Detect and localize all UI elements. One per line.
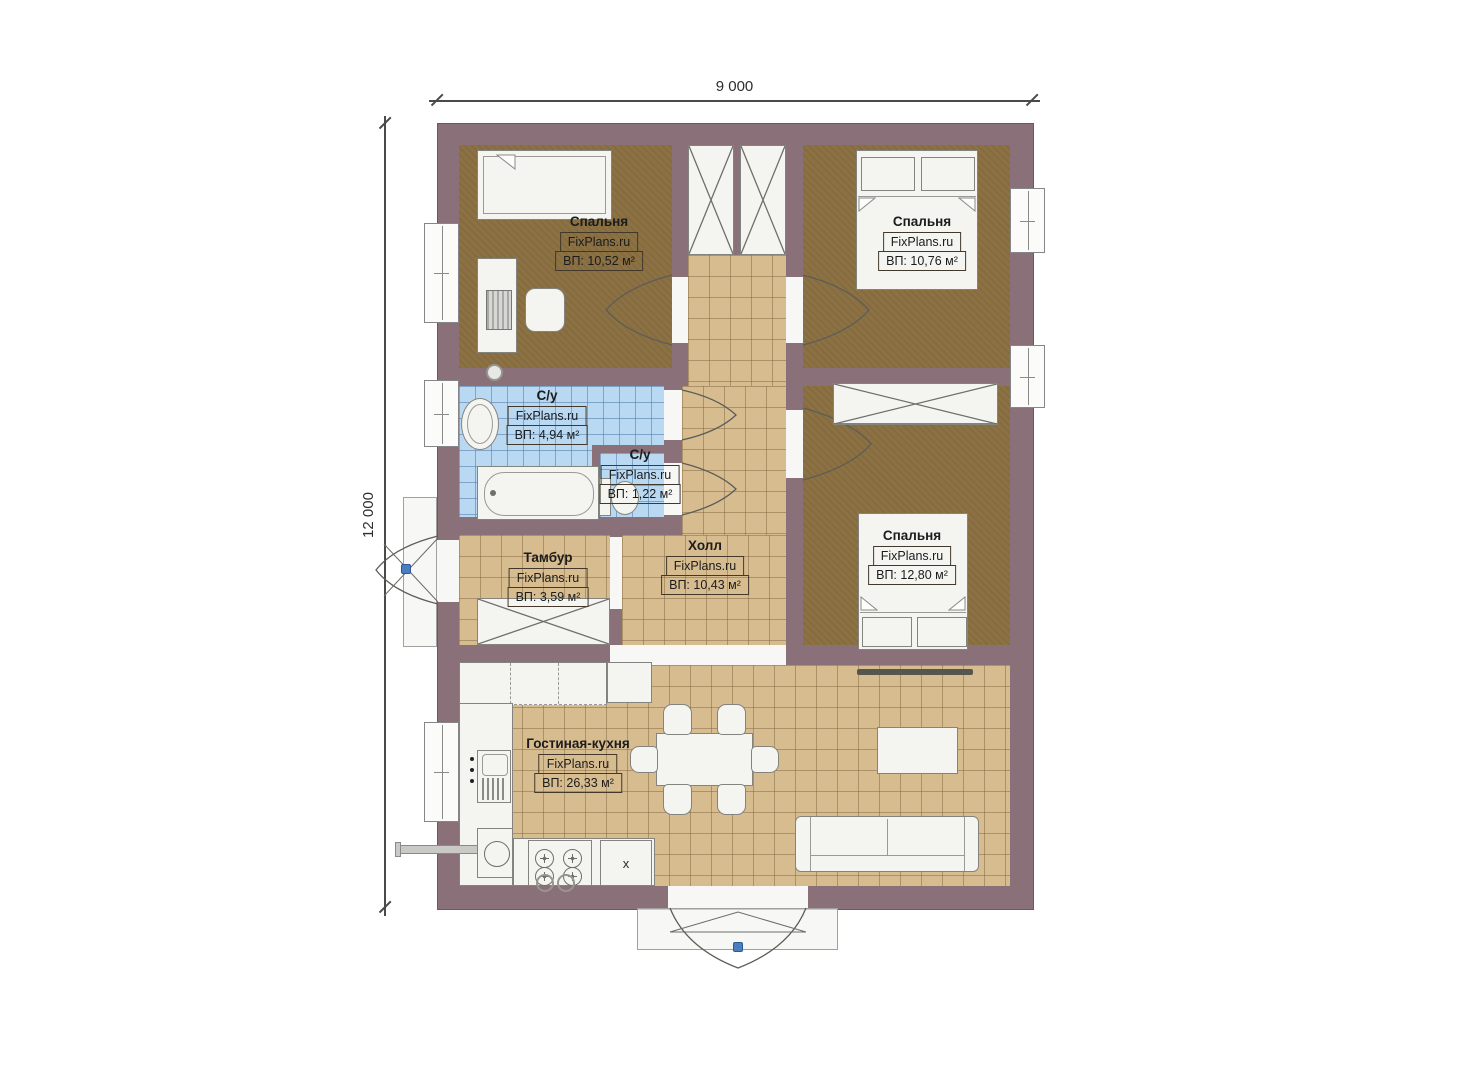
window: [1010, 188, 1045, 253]
wardrobe: [740, 145, 786, 255]
room-label-bedroom-2: Спальня FixPlans.ru ВП: 10,76 м²: [878, 214, 966, 271]
window: [1010, 345, 1045, 408]
desk-chair: [525, 288, 565, 332]
door-reference-point: [733, 942, 743, 952]
window: [424, 223, 459, 323]
wall: [672, 145, 688, 255]
dining-chair: [663, 704, 692, 735]
vent-circle: [557, 874, 575, 892]
wall: [734, 145, 740, 255]
room-label-bedroom-3: Спальня FixPlans.ru ВП: 12,80 м²: [868, 528, 956, 585]
door-swing-icon: [680, 388, 738, 442]
wall: [672, 255, 688, 277]
kitchen-upper-cabinets: [459, 662, 607, 705]
watermark: FixPlans.ru: [560, 232, 639, 252]
room-name: Спальня: [883, 528, 941, 544]
watermark: FixPlans.ru: [601, 465, 680, 485]
window: [424, 380, 459, 447]
room-area: ВП: 12,80 м²: [868, 565, 956, 585]
faucet-dot: [470, 768, 474, 772]
room-label-vestibule: Тамбур FixPlans.ru ВП: 3,59 м²: [508, 550, 589, 607]
bathroom-sink: [461, 398, 499, 450]
watermark: FixPlans.ru: [883, 232, 962, 252]
water-pipe: [398, 845, 483, 854]
blanket-fold: [496, 154, 516, 170]
room-area: ВП: 10,43 м²: [661, 575, 749, 595]
coffee-table: [877, 727, 958, 774]
vent-circle: [536, 874, 554, 892]
door-swing-icon: [604, 273, 674, 347]
bathtub: [477, 466, 599, 520]
dimension-line-left: [384, 116, 386, 916]
tv: [857, 669, 973, 675]
sofa: [795, 816, 979, 872]
room-name: Гостиная-кухня: [526, 736, 629, 752]
door-swing-icon: [680, 461, 738, 517]
room-label-bedroom-1: Спальня FixPlans.ru ВП: 10,52 м²: [555, 214, 643, 271]
vent-circle: [486, 364, 503, 381]
dining-chair: [751, 746, 779, 773]
dimension-label-width: 9 000: [437, 78, 1032, 95]
room-label-hall: Холл FixPlans.ru ВП: 10,43 м²: [661, 538, 749, 595]
opening-vestibule-hall: [610, 537, 622, 609]
room-area: ВП: 10,52 м²: [555, 251, 643, 271]
watermark: FixPlans.ru: [666, 556, 745, 576]
dining-chair: [717, 704, 746, 735]
room-area: ВП: 26,33 м²: [534, 773, 622, 793]
wall: [786, 478, 803, 645]
door-reference-point: [401, 564, 411, 574]
kitchen-corner-sink: [477, 828, 513, 878]
pillow: [862, 617, 912, 647]
room-name: С/у: [536, 388, 557, 404]
pillow: [861, 157, 915, 191]
blanket-fold: [860, 596, 878, 611]
printer: [486, 290, 512, 330]
dimension-line-top: [429, 100, 1040, 102]
fridge: [607, 662, 652, 703]
room-area: ВП: 3,59 м²: [508, 587, 589, 607]
faucet-dot: [470, 779, 474, 783]
door-opening-entrance: [437, 540, 459, 602]
door-opening-terrace: [668, 886, 808, 908]
wardrobe: [688, 145, 734, 255]
room-label-wc: С/у FixPlans.ru ВП: 1,22 м²: [600, 447, 681, 504]
wall: [786, 343, 803, 386]
watermark: FixPlans.ru: [539, 754, 618, 774]
blanket-fold: [858, 197, 876, 212]
blanket-line: [860, 612, 966, 613]
water-pipe-cap: [395, 842, 401, 857]
floor-hall-corridor: [688, 255, 786, 386]
blanket-fold: [948, 596, 966, 611]
wall: [672, 343, 688, 386]
room-name: Холл: [688, 538, 722, 554]
pillow: [921, 157, 975, 191]
room-name: С/у: [629, 447, 650, 463]
room-name: Спальня: [893, 214, 951, 230]
kitchen-sink-unit: [477, 750, 511, 803]
room-area: ВП: 4,94 м²: [507, 425, 588, 445]
pillow: [917, 617, 967, 647]
window: [424, 722, 459, 822]
dining-table: [656, 733, 753, 786]
room-label-living-kitchen: Гостиная-кухня FixPlans.ru ВП: 26,33 м²: [526, 736, 629, 793]
dining-chair: [630, 746, 658, 773]
watermark: FixPlans.ru: [873, 546, 952, 566]
room-name: Спальня: [570, 214, 628, 230]
wardrobe: [833, 383, 998, 425]
dining-chair: [717, 784, 746, 815]
door-opening-bedroom-1: [672, 277, 688, 343]
watermark: FixPlans.ru: [509, 568, 588, 588]
wall: [786, 145, 803, 255]
blanket-fold: [958, 197, 976, 212]
room-area: ВП: 10,76 м²: [878, 251, 966, 271]
dishwasher: х: [600, 840, 652, 886]
dishwasher-marker: х: [623, 856, 630, 871]
faucet-dot: [470, 757, 474, 761]
watermark: FixPlans.ru: [508, 406, 587, 426]
room-area: ВП: 1,22 м²: [600, 484, 681, 504]
floor-plan-canvas: 9 000 12 000: [0, 0, 1474, 1080]
room-label-bathroom: С/у FixPlans.ru ВП: 4,94 м²: [507, 388, 588, 445]
room-name: Тамбур: [524, 550, 573, 566]
dining-chair: [663, 784, 692, 815]
